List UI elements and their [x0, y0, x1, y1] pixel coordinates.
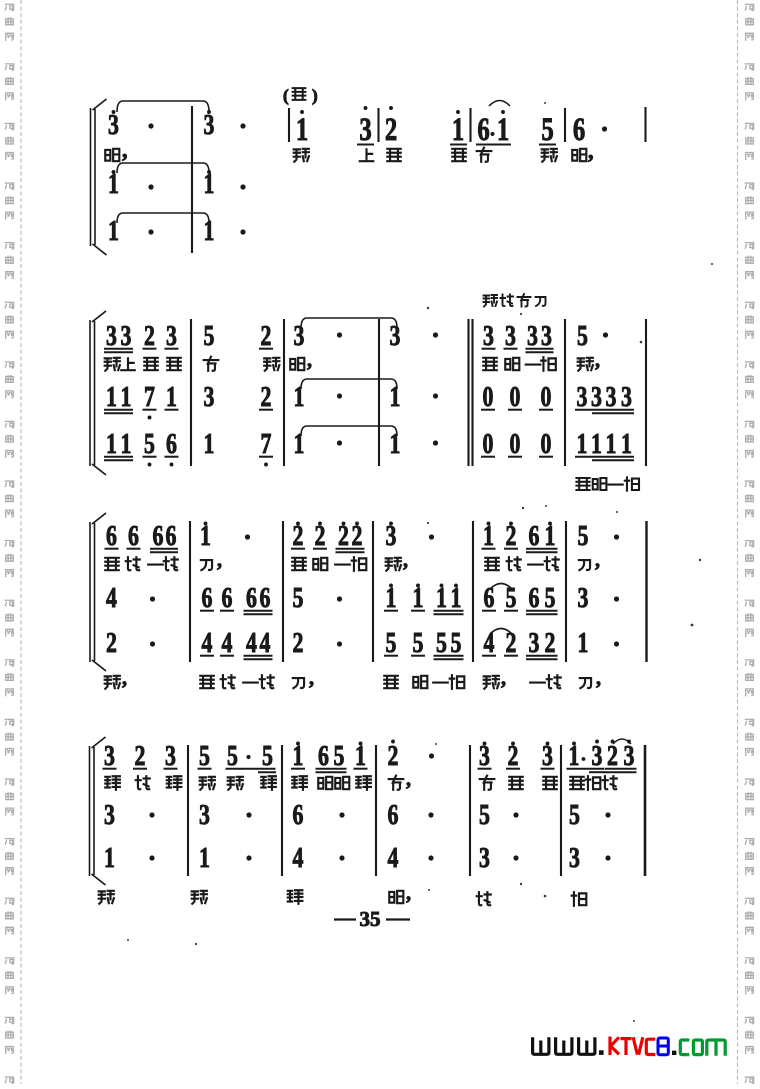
svg-text:3: 3 — [577, 383, 588, 413]
svg-text:5: 5 — [386, 629, 397, 659]
svg-text:1: 1 — [294, 430, 305, 460]
svg-text:1: 1 — [204, 430, 215, 460]
svg-text:3: 3 — [569, 844, 580, 874]
svg-text:6: 6 — [153, 522, 164, 552]
svg-text:1: 1 — [591, 430, 602, 460]
svg-text:5: 5 — [436, 629, 447, 659]
svg-text:5: 5 — [479, 801, 490, 831]
svg-text:1: 1 — [413, 584, 424, 614]
svg-text:,: , — [501, 668, 506, 690]
svg-text:0: 0 — [510, 383, 521, 413]
svg-text:3: 3 — [359, 112, 371, 148]
svg-text:5: 5 — [144, 430, 155, 460]
svg-text:6: 6 — [106, 522, 117, 552]
svg-text:3: 3 — [479, 742, 490, 772]
svg-text:4: 4 — [222, 629, 233, 659]
svg-text:,: , — [588, 139, 594, 164]
svg-text:5: 5 — [413, 629, 424, 659]
svg-text:,: , — [122, 668, 127, 690]
svg-text:2: 2 — [315, 522, 326, 552]
svg-text:1: 1 — [497, 112, 509, 148]
svg-text:3: 3 — [624, 742, 635, 772]
svg-text:3: 3 — [104, 742, 115, 772]
svg-text:1: 1 — [166, 383, 177, 413]
svg-text:35: 35 — [360, 907, 381, 931]
svg-text:5: 5 — [577, 322, 588, 352]
svg-text:2: 2 — [508, 742, 519, 772]
svg-text:1: 1 — [386, 584, 397, 614]
svg-text:1: 1 — [200, 522, 211, 552]
svg-text:5: 5 — [451, 629, 462, 659]
svg-text:1: 1 — [121, 430, 132, 460]
svg-text:1: 1 — [577, 430, 588, 460]
svg-text:5: 5 — [334, 742, 345, 772]
svg-text:3: 3 — [166, 322, 177, 352]
svg-text:0: 0 — [483, 430, 494, 460]
svg-text:1: 1 — [452, 112, 464, 148]
svg-text:3: 3 — [199, 801, 210, 831]
svg-text:1: 1 — [569, 742, 580, 772]
svg-text:3: 3 — [505, 322, 516, 352]
svg-text:3: 3 — [541, 322, 552, 352]
svg-text:3: 3 — [165, 742, 176, 772]
svg-text:1: 1 — [199, 844, 210, 874]
svg-text:3: 3 — [578, 584, 589, 614]
svg-text:1: 1 — [106, 430, 117, 460]
svg-text:4: 4 — [293, 844, 304, 874]
svg-text:3: 3 — [591, 383, 602, 413]
svg-text:): ) — [312, 86, 318, 105]
svg-text:0: 0 — [510, 430, 521, 460]
svg-text:0: 0 — [483, 383, 494, 413]
svg-text:6: 6 — [166, 522, 177, 552]
svg-text:2: 2 — [261, 322, 272, 352]
svg-text:3: 3 — [621, 383, 632, 413]
svg-text:3: 3 — [204, 383, 215, 413]
svg-text:1: 1 — [106, 383, 117, 413]
svg-text:6: 6 — [318, 742, 329, 772]
svg-text:1: 1 — [294, 383, 305, 413]
svg-text:1: 1 — [296, 112, 308, 148]
svg-text:3: 3 — [483, 322, 494, 352]
svg-text:,: , — [596, 668, 601, 690]
svg-text:1: 1 — [451, 584, 462, 614]
svg-text:1: 1 — [204, 170, 215, 200]
svg-text:3: 3 — [108, 111, 119, 141]
svg-text:3: 3 — [527, 322, 538, 352]
svg-text:1: 1 — [545, 522, 556, 552]
svg-text:3: 3 — [104, 801, 115, 831]
svg-text:1: 1 — [104, 844, 115, 874]
svg-text:1: 1 — [293, 742, 304, 772]
svg-text:5: 5 — [578, 522, 589, 552]
svg-text:2: 2 — [293, 629, 304, 659]
svg-text:1: 1 — [390, 383, 401, 413]
svg-text:5: 5 — [293, 584, 304, 614]
svg-text:6: 6 — [388, 801, 399, 831]
svg-text:6: 6 — [260, 584, 271, 614]
svg-text:,: , — [403, 550, 408, 572]
svg-text:7: 7 — [144, 383, 155, 413]
svg-text:2: 2 — [144, 322, 155, 352]
svg-text:4: 4 — [106, 584, 117, 614]
svg-text:3: 3 — [529, 629, 540, 659]
svg-text:4: 4 — [202, 629, 213, 659]
svg-text:2: 2 — [338, 522, 349, 552]
svg-text:6: 6 — [529, 522, 540, 552]
svg-text:1: 1 — [108, 170, 119, 200]
svg-text:6: 6 — [293, 801, 304, 831]
svg-text:5: 5 — [569, 801, 580, 831]
svg-text:3: 3 — [204, 111, 215, 141]
svg-text:6: 6 — [246, 584, 257, 614]
svg-text:1: 1 — [483, 522, 494, 552]
svg-text:3: 3 — [479, 844, 490, 874]
svg-text:6: 6 — [477, 112, 489, 148]
svg-text:0: 0 — [541, 383, 552, 413]
svg-text:2: 2 — [106, 629, 117, 659]
svg-text:5: 5 — [204, 322, 215, 352]
svg-text:1: 1 — [621, 430, 632, 460]
svg-text:2: 2 — [293, 522, 304, 552]
svg-text:5: 5 — [199, 742, 210, 772]
svg-text:,: , — [307, 350, 312, 372]
svg-text:3: 3 — [390, 322, 401, 352]
svg-text:4: 4 — [388, 844, 399, 874]
svg-text:(: ( — [283, 86, 289, 105]
svg-text:1: 1 — [578, 629, 589, 659]
svg-text:4: 4 — [260, 629, 271, 659]
svg-text:3: 3 — [542, 742, 553, 772]
svg-text:5: 5 — [227, 742, 238, 772]
svg-text:,: , — [406, 769, 411, 791]
svg-text:6: 6 — [128, 522, 139, 552]
svg-text:5: 5 — [545, 584, 556, 614]
svg-text:2: 2 — [506, 522, 517, 552]
svg-text:3: 3 — [592, 742, 603, 772]
svg-text:2: 2 — [545, 629, 556, 659]
svg-text:6: 6 — [573, 112, 585, 148]
svg-text:4: 4 — [246, 629, 257, 659]
svg-text:,: , — [406, 883, 411, 905]
svg-text:1: 1 — [121, 383, 132, 413]
svg-text:3: 3 — [386, 522, 397, 552]
svg-text:6: 6 — [222, 584, 233, 614]
svg-text:5: 5 — [262, 742, 273, 772]
svg-text:7: 7 — [261, 430, 272, 460]
svg-text:4: 4 — [484, 629, 495, 659]
svg-text:0: 0 — [541, 430, 552, 460]
svg-text:1: 1 — [606, 430, 617, 460]
svg-text:,: , — [595, 350, 600, 372]
svg-text:3: 3 — [121, 322, 132, 352]
svg-text:6: 6 — [166, 430, 177, 460]
svg-text:,: , — [595, 550, 600, 572]
svg-text:1: 1 — [436, 584, 447, 614]
svg-text:,: , — [309, 668, 314, 690]
svg-text:1: 1 — [355, 742, 366, 772]
svg-text:,: , — [217, 550, 222, 572]
svg-text:3: 3 — [106, 322, 117, 352]
svg-text:5: 5 — [541, 112, 553, 148]
svg-text:,: , — [122, 138, 128, 163]
svg-text:3: 3 — [294, 322, 305, 352]
svg-text:2: 2 — [135, 742, 146, 772]
svg-text:3: 3 — [606, 383, 617, 413]
svg-text:2: 2 — [261, 383, 272, 413]
svg-text:2: 2 — [607, 742, 618, 772]
svg-text:1: 1 — [390, 430, 401, 460]
svg-text:6: 6 — [529, 584, 540, 614]
svg-text:2: 2 — [352, 522, 363, 552]
svg-text:2: 2 — [385, 112, 397, 148]
svg-text:6: 6 — [202, 584, 213, 614]
svg-text:6: 6 — [484, 584, 495, 614]
svg-text:2: 2 — [388, 742, 399, 772]
